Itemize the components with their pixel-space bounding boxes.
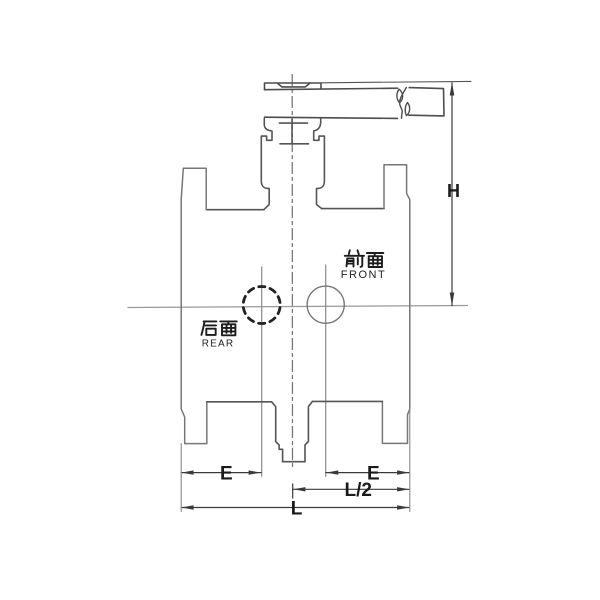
svg-text:L/2: L/2 [344,480,371,501]
svg-text:FRONT: FRONT [341,269,386,281]
svg-text:E: E [220,464,233,485]
svg-text:H: H [447,181,460,201]
svg-text:L: L [291,499,303,520]
svg-text:REAR: REAR [202,338,235,349]
